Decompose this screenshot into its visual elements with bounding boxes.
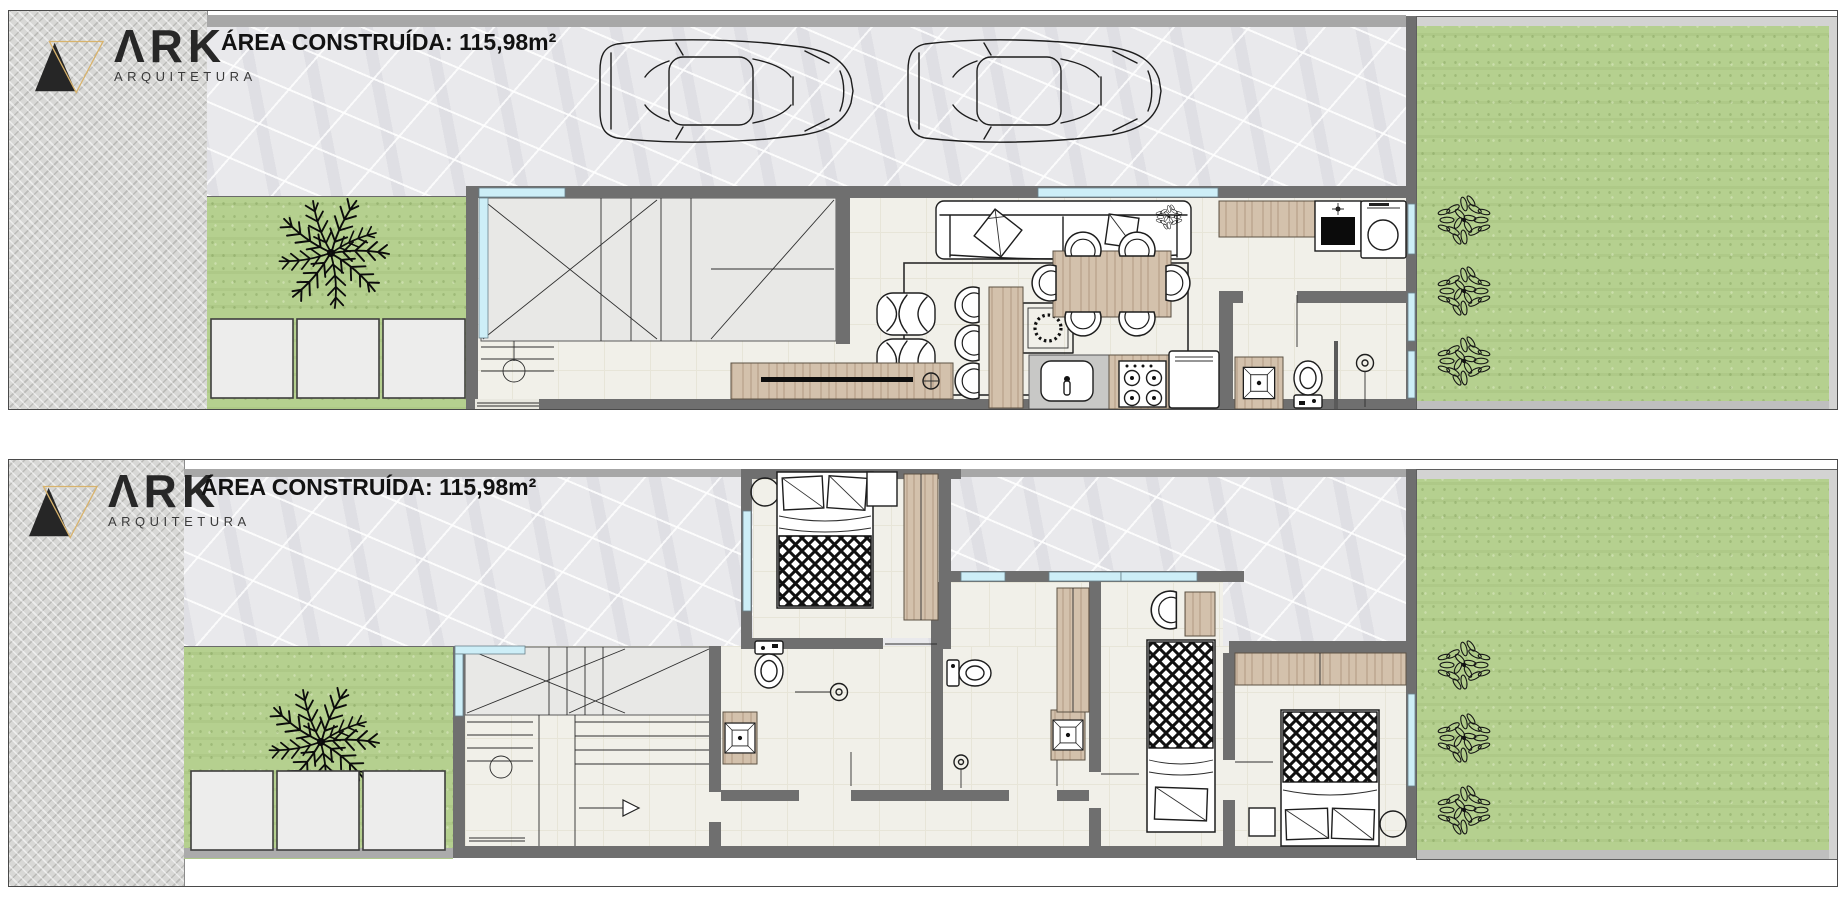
bush-icon xyxy=(1438,266,1491,316)
paver xyxy=(191,771,445,850)
logo-subtext: ARQUITETURA xyxy=(108,514,251,529)
plan-upper-floor: ΛRK ARQUITETURA ÁREA CONSTRUÍDA: 115,98m… xyxy=(8,459,1838,887)
palm-tree-icon xyxy=(277,195,389,308)
bar-stool-icon xyxy=(955,287,979,399)
dining-table-icon xyxy=(1053,251,1171,317)
wardrobe xyxy=(1235,653,1406,685)
plan-ground-floor: ΛRK ARQUITETURA ÁREA CONSTRUÍDA: 115,98m… xyxy=(8,10,1838,410)
washbasin-icon xyxy=(1235,357,1283,409)
laundry-sink-icon xyxy=(1315,201,1361,251)
shower-head-icon xyxy=(795,684,848,701)
tv-console xyxy=(731,363,953,399)
stair-arrow-icon xyxy=(579,800,639,816)
bed-shelf xyxy=(867,472,897,506)
stairs-icon xyxy=(481,198,836,382)
ground-floor-drawing xyxy=(9,11,1837,409)
washbasin-icon xyxy=(723,712,757,764)
wardrobe xyxy=(904,474,938,620)
logo-subtext: ARQUITETURA xyxy=(114,69,257,84)
bush-icon xyxy=(1438,640,1491,690)
bush-icon xyxy=(1438,195,1491,245)
logo-mark-icon xyxy=(35,25,107,109)
toilet-icon xyxy=(755,641,783,688)
bush-icon xyxy=(1438,713,1491,763)
car-icon xyxy=(600,40,853,143)
fridge-icon xyxy=(1169,351,1219,408)
area-label: ÁREA CONSTRUÍDA: 115,98m² xyxy=(201,474,536,501)
wardrobe xyxy=(1057,588,1089,712)
upper-floor-drawing xyxy=(9,460,1837,886)
logo-mark-icon xyxy=(29,470,101,554)
side-table-icon xyxy=(1380,811,1406,837)
bed-icon xyxy=(1281,710,1379,846)
area-label: ÁREA CONSTRUÍDA: 115,98m² xyxy=(221,29,556,56)
armchair-icon xyxy=(1151,591,1176,629)
stairs-icon xyxy=(465,647,711,846)
toilet-icon xyxy=(1294,361,1322,408)
bed-icon xyxy=(777,472,873,608)
bar-counter xyxy=(989,287,1023,408)
stool xyxy=(1249,808,1275,836)
toilet-icon xyxy=(947,660,991,686)
sink-icon xyxy=(1041,361,1093,401)
car-icon xyxy=(908,40,1161,143)
bed-icon xyxy=(1147,640,1215,832)
bedside-table-icon xyxy=(751,478,779,506)
washing-machine-icon xyxy=(1361,201,1406,258)
bush-icon xyxy=(1438,785,1491,835)
shelf xyxy=(1185,592,1215,636)
shower-drain-icon xyxy=(954,755,968,788)
bush-icon xyxy=(1438,336,1491,386)
washbasin-icon xyxy=(1051,710,1085,760)
stove-icon xyxy=(1119,361,1166,407)
paver xyxy=(211,319,465,398)
